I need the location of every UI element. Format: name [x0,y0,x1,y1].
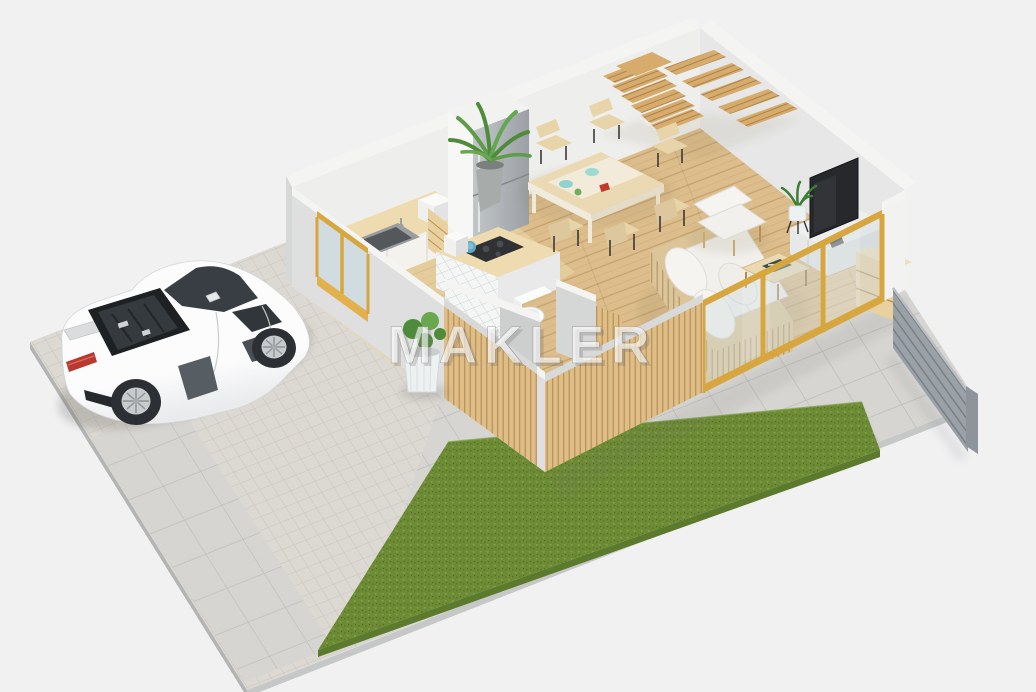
car-front-wheel [252,328,296,368]
coffee-maker [444,231,468,257]
watermark: MAKLER MAKLER [388,316,660,378]
door-post [880,214,885,302]
car-rear-wheel [111,379,161,425]
floor-plan-render: MAKLER MAKLER [0,0,1036,692]
door-post [821,244,826,332]
tableware [559,180,573,188]
door-post [761,274,766,362]
fence-post [966,386,978,454]
scene-canvas: MAKLER MAKLER [0,0,1036,692]
watermark-text: MAKLER [388,316,657,375]
corner-pillar [882,198,905,302]
